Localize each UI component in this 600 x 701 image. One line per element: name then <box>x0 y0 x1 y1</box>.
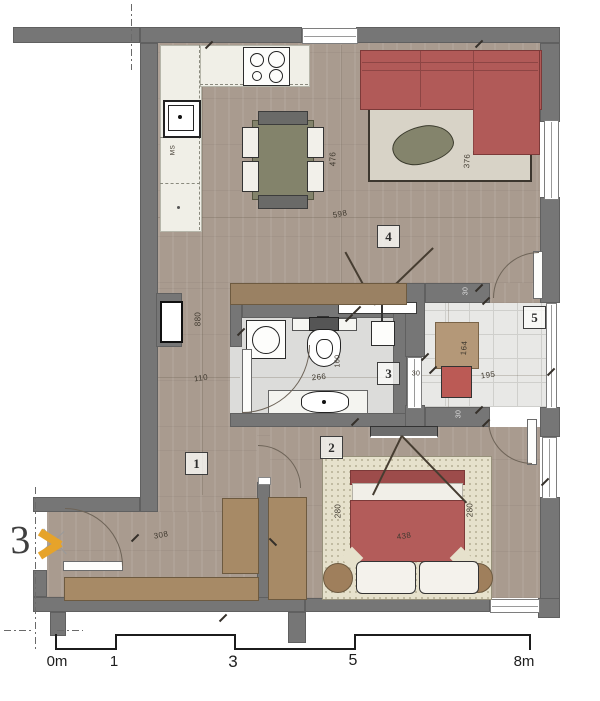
wall-right-upper <box>540 43 560 122</box>
scale-bar-segment <box>55 648 117 650</box>
hall-bench <box>64 577 259 601</box>
axis-line <box>4 630 32 631</box>
floor-bathroom-door-gap <box>230 347 242 413</box>
scale-bar-tick <box>529 634 531 650</box>
dim-living-rug: 376 <box>462 153 472 168</box>
burner-icon <box>268 51 285 68</box>
scale-bar-tick <box>354 634 356 650</box>
dim-bath-depth: 160 <box>335 355 342 368</box>
tick-mark <box>219 614 227 622</box>
floor-plan: 1 2 3 4 5 476 598 376 880 110 266 160 30… <box>0 0 600 701</box>
water-heater <box>371 321 395 346</box>
wall-top-right <box>356 27 560 43</box>
scale-bar-segment <box>234 648 356 650</box>
window-top <box>302 28 358 44</box>
toilet-inner <box>316 339 333 359</box>
guide-line <box>202 45 203 495</box>
dim-bath-width: 266 <box>311 372 326 382</box>
window-living-right <box>544 120 559 200</box>
dining-chair <box>307 161 324 192</box>
bed-end-cushion <box>419 561 479 594</box>
dining-table <box>252 120 314 200</box>
dim-hall-length: 880 <box>194 312 203 327</box>
wall-left-main <box>140 43 158 512</box>
room-number-3: 3 <box>377 362 400 385</box>
cabinet-handle <box>177 206 180 209</box>
dim-dining: 476 <box>329 152 338 167</box>
scale-label-1: 1 <box>110 653 118 670</box>
sink-drain <box>322 400 326 404</box>
window-balcony-right <box>546 303 557 409</box>
burner-icon <box>252 71 262 81</box>
wardrobe-right <box>268 497 307 600</box>
scale-bar-tick <box>115 634 117 650</box>
scale-bar-segment <box>115 634 236 636</box>
dim-wall-mid: 30 <box>412 371 421 378</box>
wall-right-balcony-stub <box>540 407 560 437</box>
dim-balcony-table: 164 <box>459 340 469 355</box>
sofa-chaise <box>473 50 540 155</box>
sofa-seam <box>362 70 538 71</box>
room-number-label: 1 <box>193 456 200 472</box>
dining-chair <box>307 127 324 158</box>
wall-bottom-corner <box>538 598 560 618</box>
room-number-label: 5 <box>531 310 538 326</box>
wall-right-mid <box>540 197 560 303</box>
dining-bench-bottom <box>258 195 308 209</box>
sink-drain <box>178 115 182 119</box>
room-number-label: 4 <box>385 229 392 245</box>
wall-stub-below-mid <box>288 612 306 643</box>
wardrobe-left <box>222 498 259 574</box>
bathroom-shelf <box>230 283 407 305</box>
dining-bench-top <box>258 111 308 125</box>
room-number-2: 2 <box>320 436 343 459</box>
sheet-number: 3 <box>9 516 31 564</box>
dim-wall-bottom: 30 <box>456 410 463 419</box>
dining-chair <box>242 161 259 192</box>
kitchen-sink <box>163 100 201 138</box>
scale-label-3: 3 <box>228 652 237 672</box>
axis-line <box>57 630 83 631</box>
scale-label-0m: 0m <box>47 653 68 670</box>
wall-balcony-left-upper <box>405 283 425 357</box>
sofa-seam <box>473 51 474 151</box>
scale-label-8m: 8m <box>514 653 535 670</box>
room-number-5: 5 <box>523 306 546 329</box>
kitchen-counter-left <box>160 45 202 232</box>
sofa-seam <box>420 51 421 107</box>
bathroom-sink <box>301 391 349 413</box>
room-number-4: 4 <box>377 225 400 248</box>
window-bathroom-balcony <box>407 357 422 409</box>
wall-entry-top <box>33 497 140 512</box>
room-number-1: 1 <box>185 452 208 475</box>
axis-line <box>35 487 36 650</box>
wall-bottom-bedroom <box>305 598 490 612</box>
room-number-label: 3 <box>385 366 392 382</box>
dining-chair <box>242 127 259 158</box>
scale-bar-segment <box>354 634 531 636</box>
dim-bed-right: 280 <box>466 503 475 518</box>
dim-bed-left: 280 <box>334 504 343 519</box>
burner-icon <box>250 53 264 67</box>
window-bedroom-bottom <box>490 599 540 613</box>
bed-end-cushion <box>356 561 416 594</box>
stove <box>243 47 290 86</box>
balcony-table <box>435 322 479 369</box>
wall-top-left <box>140 27 302 43</box>
wall-top-stub <box>13 27 140 43</box>
burner-icon <box>269 69 283 83</box>
scale-label-5: 5 <box>349 652 358 670</box>
guide-line <box>158 217 540 218</box>
counter-dashed-edge <box>160 183 200 184</box>
balcony-chair <box>441 366 472 398</box>
room-number-label: 2 <box>328 440 335 456</box>
nightstand <box>323 563 353 593</box>
electrical-panel <box>160 301 183 343</box>
dim-hall-width: 110 <box>193 373 208 384</box>
appliance-label-ms: MS <box>170 145 177 156</box>
water-heater-pipe <box>381 305 383 321</box>
window-bedroom-right <box>542 437 557 499</box>
wall-stub-below-left <box>50 612 66 636</box>
axis-line <box>131 4 132 70</box>
sofa-seam <box>362 62 538 63</box>
guide-line <box>341 45 342 303</box>
dim-wall-top: 30 <box>463 287 470 296</box>
